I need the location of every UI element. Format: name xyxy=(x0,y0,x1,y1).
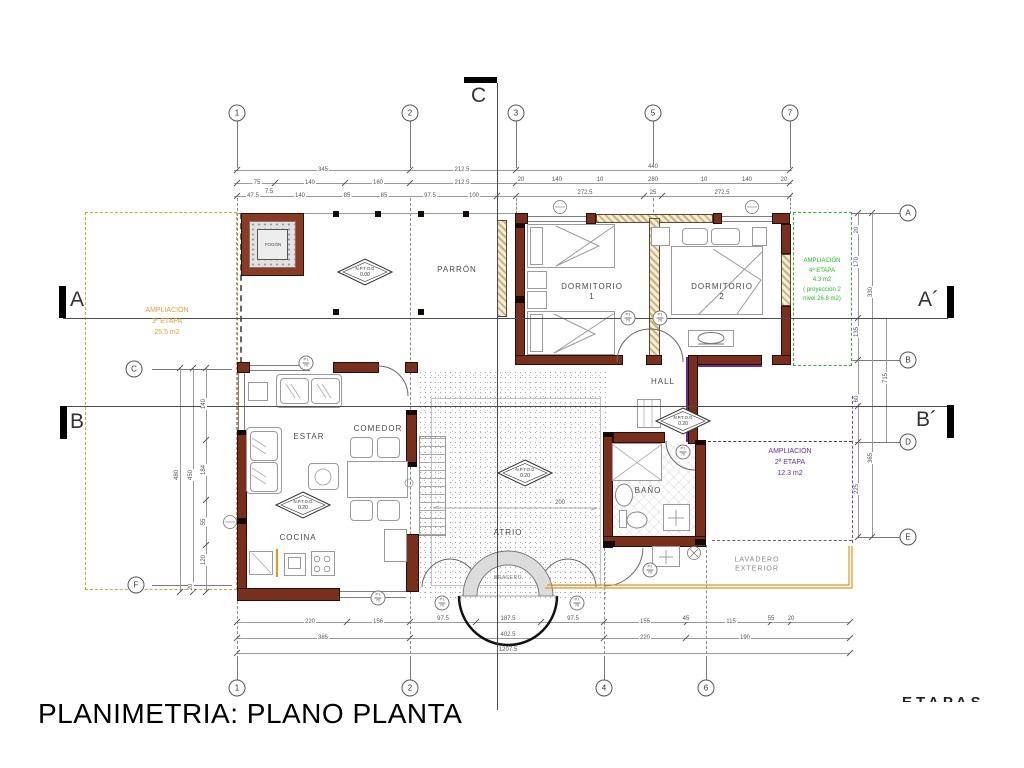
grid-1-line xyxy=(237,121,238,168)
pergola-post xyxy=(333,309,339,315)
dim-label: 220 xyxy=(304,619,316,625)
dim-label: 280 xyxy=(647,177,659,183)
atrio-inner-rect xyxy=(431,398,601,586)
deck-steps xyxy=(419,436,446,536)
dim-label: 140 xyxy=(294,193,306,199)
grid-bubble-1t: 1 xyxy=(229,105,246,122)
wall xyxy=(772,213,790,224)
grid-bubble-E: E xyxy=(900,529,917,546)
dim-label: 170 xyxy=(854,256,860,268)
dim-label: 75 xyxy=(253,180,262,186)
side-table xyxy=(752,227,767,246)
section-label-A: A xyxy=(70,288,84,312)
dim-label: 345 xyxy=(317,167,329,173)
laundry-tray xyxy=(652,546,680,567)
dim-label: 212.5 xyxy=(453,167,470,173)
door-tag: P170 xyxy=(653,311,668,326)
room-label-estar: ESTAR xyxy=(293,432,324,442)
chair xyxy=(350,500,373,521)
window xyxy=(528,216,586,222)
zone-label-etapa3: AMPLIACIÓN 3ª ETAPA 25.5 m2 xyxy=(145,306,188,339)
dim-label: 140 xyxy=(304,180,316,186)
section-label-C: C xyxy=(471,84,486,108)
level-marker-atrio: N.P.T.O.G0.20 xyxy=(497,459,553,487)
dim-label: 140 xyxy=(201,398,207,410)
fridge xyxy=(249,551,273,575)
room-label-comedor: COMEDOR xyxy=(354,424,403,434)
wall xyxy=(781,224,791,254)
dim-label: 55 xyxy=(201,518,207,527)
pergola-post xyxy=(375,211,381,217)
dim-label: 480 xyxy=(174,469,180,481)
grid-bubble-A: A xyxy=(900,205,917,222)
window xyxy=(722,216,773,222)
dim-label: 200 xyxy=(554,500,566,506)
side-table xyxy=(651,227,670,246)
dim-label: 97.5 xyxy=(423,193,437,199)
grid-5-line xyxy=(653,121,654,168)
wall xyxy=(713,213,722,224)
dim-label: 10 xyxy=(596,177,605,183)
room-label-parron: PARRÓN xyxy=(437,265,477,275)
pergola-post xyxy=(418,309,424,315)
door-tag: P170 xyxy=(570,596,585,611)
door-tag: P170 xyxy=(435,596,450,611)
wall-hatched xyxy=(781,254,791,306)
pergola-post xyxy=(463,211,469,217)
dim-label: 155 xyxy=(639,619,651,625)
shower-tray xyxy=(663,504,690,531)
grid-bubble-D: D xyxy=(900,434,917,451)
section-bar xyxy=(60,406,67,439)
wall xyxy=(772,355,791,365)
pillow xyxy=(682,228,708,245)
grid-bubble-C: C xyxy=(126,361,143,378)
dim-label: 715 xyxy=(883,372,889,384)
grid-3-line xyxy=(516,121,517,168)
dim-label: 97.5 xyxy=(566,616,580,622)
armchair xyxy=(308,463,339,490)
grid-bubble-4b: 4 xyxy=(596,680,613,697)
dim-label: 97.5 xyxy=(436,616,450,622)
section-label-A2: A´ xyxy=(918,288,939,312)
fogon-label: FOGÓN xyxy=(265,242,282,248)
zone-label-etapa2: AMPLIACIÓN 2ª ETAPA 12.3 m2 xyxy=(768,447,811,480)
dim-label: 160 xyxy=(372,180,384,186)
grid-bubble-1b: 1 xyxy=(229,680,246,697)
section-line-BB xyxy=(63,406,948,407)
room-label-cocina: COCINA xyxy=(279,533,316,543)
wall xyxy=(515,355,623,365)
dim-label: 120 xyxy=(201,554,207,566)
dim-label: 115 xyxy=(725,619,737,625)
dim-label: 135 xyxy=(854,326,860,338)
dim-label: 85 xyxy=(343,193,352,199)
dim-label: 85 xyxy=(380,193,389,199)
dining-table xyxy=(347,461,408,498)
dim-label: 272.5 xyxy=(576,190,593,196)
dim-label: 440 xyxy=(647,164,659,170)
grid-bubble-3t: 3 xyxy=(508,105,525,122)
grid-bubble-7t: 7 xyxy=(782,105,799,122)
dim-label: 225 xyxy=(854,483,860,495)
zone-etapa2-right xyxy=(852,396,853,543)
wall xyxy=(515,224,525,365)
floor-plan-sheet: FOGÓN xyxy=(0,0,1024,768)
section-bar xyxy=(947,286,954,318)
dim-label: 140 xyxy=(741,177,753,183)
room-label-lavadero: LAVADEROEXTERIOR xyxy=(734,556,779,574)
section-bar xyxy=(59,286,66,318)
dim-label: 1207.5 xyxy=(498,647,518,653)
dim-label: 212.5 xyxy=(453,180,470,186)
dim-label: 330 xyxy=(868,286,874,298)
pillow xyxy=(530,314,543,352)
chair xyxy=(350,437,373,458)
dim-label: 402.5 xyxy=(499,632,516,638)
grid-bubble-6b: 6 xyxy=(698,680,715,697)
zone-etapa3 xyxy=(85,212,237,590)
dim-label: 190 xyxy=(739,635,751,641)
orange-divider xyxy=(276,549,278,577)
level-marker-estar: N.P.T.O.G0.20 xyxy=(275,491,331,519)
wall xyxy=(515,213,528,224)
section-bar xyxy=(464,77,497,83)
grid-bubble-B: B xyxy=(900,352,917,369)
dim-label: 10 xyxy=(700,177,709,183)
dim-label: 55 xyxy=(767,616,776,622)
dim-label: 100 xyxy=(468,193,480,199)
dim-label: 156 xyxy=(372,619,384,625)
dim-label: 140 xyxy=(551,177,563,183)
dim-label: 47.5 xyxy=(246,193,260,199)
dim-label: 20 xyxy=(188,583,194,592)
grid-2-line xyxy=(410,121,411,168)
counter xyxy=(384,529,407,562)
room-label-dorm1: DORMITORIO1 xyxy=(561,282,623,302)
chair xyxy=(377,437,400,458)
nightstand xyxy=(527,291,547,309)
level-marker-hall: N.P.T.O.G0.20 xyxy=(655,407,711,435)
side-table xyxy=(248,382,268,401)
room-label-bano: BAÑO xyxy=(635,486,662,496)
door-tag: P170 xyxy=(676,445,691,460)
double-bed xyxy=(671,246,763,315)
section-label-B: B xyxy=(70,410,84,434)
door-tag: P170 xyxy=(299,356,314,371)
dim-label: 45 xyxy=(682,616,691,622)
dim-label: 20 xyxy=(787,616,796,622)
wall xyxy=(586,213,596,224)
wall xyxy=(688,355,762,365)
door-tag: P170 xyxy=(621,311,636,326)
grid-bubble-2t: 2 xyxy=(402,105,419,122)
dim-label: 220 xyxy=(639,635,651,641)
nightstand xyxy=(527,271,547,289)
room-label-dorm2: DORMITORIO2 xyxy=(691,282,753,302)
dim-label: 60 xyxy=(854,395,860,404)
zone-label-etapa4: AMPLIACIÓN 4ª ETAPA 4.3 m2 ( proyección … xyxy=(803,257,841,305)
page-title: PLANIMETRIA: PLANO PLANTA xyxy=(38,698,462,730)
room-label-atrio: ATRIO xyxy=(494,528,523,538)
zone-etapa2-top xyxy=(703,441,852,442)
door-tag: P170 xyxy=(643,563,658,578)
grid-bubble-F: F xyxy=(128,577,145,594)
dim-label: 187.5 xyxy=(499,616,516,622)
pergola-post xyxy=(418,211,424,217)
room-label-hall: HALL xyxy=(651,377,675,387)
grid-bubble-2b: 2 xyxy=(402,680,419,697)
grid-7-line xyxy=(790,121,791,168)
dim-label: 20 xyxy=(854,226,860,235)
dim-label: 272.5 xyxy=(713,190,730,196)
dim-label: 184 xyxy=(201,464,207,476)
etapas-partial-text: ETAPAS xyxy=(902,694,1012,702)
pillow xyxy=(530,227,543,265)
zone-etapa2-bottom xyxy=(712,540,852,541)
section-label-B2: B´ xyxy=(916,408,937,432)
grid-bubble-5t: 5 xyxy=(645,105,662,122)
level-marker-parron: N.P.T.O.G0.00 xyxy=(337,258,393,286)
section-line-AA xyxy=(63,318,948,319)
dim-label: 20 xyxy=(517,177,526,183)
section-line-C xyxy=(497,83,498,710)
wall xyxy=(646,355,662,365)
parron-hatch-column xyxy=(497,220,507,317)
chair xyxy=(377,500,400,521)
door-tag: P170 xyxy=(371,591,386,606)
dim-label: 25 xyxy=(649,190,658,196)
stove xyxy=(311,551,335,576)
pergola-post xyxy=(333,211,339,217)
toilet-tank xyxy=(619,510,627,528)
dim-label: 20 xyxy=(780,177,789,183)
dim-label: 7.5 xyxy=(264,189,274,195)
dim-label: 385 xyxy=(317,635,329,641)
room-label-brasero: BRASERO xyxy=(494,575,522,581)
dim-label: 450 xyxy=(188,469,194,481)
shower xyxy=(612,443,662,481)
section-bar xyxy=(947,405,954,438)
pillow xyxy=(711,228,740,245)
dim-label: 365 xyxy=(868,452,874,464)
purple-accent xyxy=(688,365,762,367)
desk xyxy=(688,330,734,347)
